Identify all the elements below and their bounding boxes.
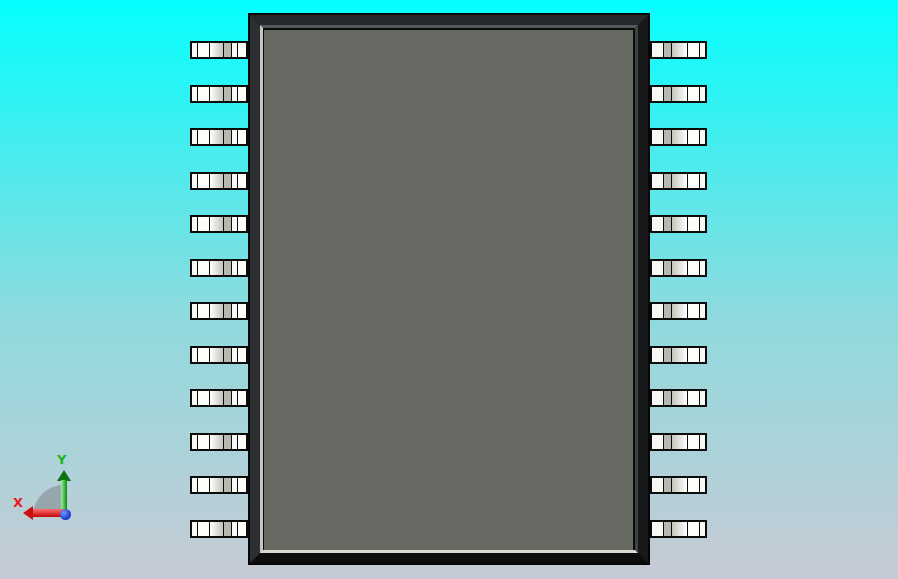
pin-segment [209,304,223,318]
pin-segment [197,87,209,101]
pin-segment [209,435,223,449]
pin-segment [209,174,223,188]
pin-segment [237,130,246,144]
ic-pin-right-11[interactable] [650,476,707,494]
pin-segment [223,435,231,449]
ic-pin-right-5[interactable] [650,215,707,233]
pin-segment [699,43,705,57]
pin-segment [652,304,663,318]
pin-segment [663,522,671,536]
pin-segment [687,130,699,144]
pin-segment [223,348,231,362]
pin-segment [197,130,209,144]
pin-segment [671,87,687,101]
pin-segment [671,174,687,188]
pin-segment [223,87,231,101]
pin-segment [699,435,705,449]
pin-segment [197,43,209,57]
pin-segment [663,304,671,318]
ic-pin-left-5[interactable] [190,215,248,233]
pin-segment [237,348,246,362]
pin-segment [209,348,223,362]
pin-segment [671,348,687,362]
pin-segment [652,43,663,57]
ic-pin-left-10[interactable] [190,433,248,451]
pin-segment [237,261,246,275]
pin-segment [687,174,699,188]
ic-pin-right-3[interactable] [650,128,707,146]
pin-segment [197,435,209,449]
ic-pin-left-2[interactable] [190,85,248,103]
pin-segment [223,478,231,492]
pin-segment [699,522,705,536]
pin-segment [209,261,223,275]
pin-segment [671,304,687,318]
pin-segment [699,478,705,492]
pin-segment [652,522,663,536]
pin-segment [663,435,671,449]
ic-pin-left-3[interactable] [190,128,248,146]
pin-segment [237,174,246,188]
pin-segment [237,304,246,318]
pin-segment [687,435,699,449]
ic-body-top-face [263,28,635,550]
pin-segment [663,174,671,188]
pin-segment [223,391,231,405]
pin-segment [223,130,231,144]
ic-pin-left-1[interactable] [190,41,248,59]
pin-segment [687,348,699,362]
pin-segment [652,348,663,362]
pin-segment [197,217,209,231]
pin-segment [223,43,231,57]
pin-segment [237,87,246,101]
pin-segment [209,391,223,405]
pin-segment [652,435,663,449]
ic-pin-left-7[interactable] [190,302,248,320]
pin-segment [687,261,699,275]
pin-segment [699,391,705,405]
orientation-gizmo: Y X [10,450,80,530]
pin-segment [671,130,687,144]
pin-segment [687,217,699,231]
ic-pin-right-8[interactable] [650,346,707,364]
pin-segment [197,174,209,188]
ic-pin-left-9[interactable] [190,389,248,407]
pin-segment [687,478,699,492]
pin-segment [209,217,223,231]
pin-segment [652,174,663,188]
ic-pin-right-1[interactable] [650,41,707,59]
x-axis-arrow-icon [23,506,33,520]
pin-segment [237,43,246,57]
pin-segment [197,522,209,536]
ic-pin-right-9[interactable] [650,389,707,407]
viewport-3d[interactable]: Y X [0,0,898,579]
pin-segment [237,391,246,405]
pin-segment [223,261,231,275]
y-axis-label: Y [57,453,66,466]
pin-segment [671,522,687,536]
pin-segment [663,217,671,231]
pin-segment [209,522,223,536]
pin-segment [237,522,246,536]
pin-segment [223,217,231,231]
pin-segment [663,130,671,144]
ic-pin-right-12[interactable] [650,520,707,538]
pin-segment [671,478,687,492]
x-axis-label: X [13,496,23,509]
pin-segment [671,217,687,231]
pin-segment [209,87,223,101]
ic-pin-left-6[interactable] [190,259,248,277]
pin-segment [687,87,699,101]
ic-pin-right-6[interactable] [650,259,707,277]
pin-segment [687,522,699,536]
pin-segment [699,348,705,362]
ic-package-body[interactable] [248,13,650,565]
pin-segment [671,435,687,449]
pin-segment [652,130,663,144]
pin-segment [687,43,699,57]
pin-segment [671,43,687,57]
pin-segment [663,478,671,492]
pin-segment [699,304,705,318]
pin-segment [652,261,663,275]
pin-segment [663,391,671,405]
pin-segment [699,217,705,231]
ic-pin-left-11[interactable] [190,476,248,494]
pin-segment [223,522,231,536]
pin-segment [663,87,671,101]
pin-segment [663,348,671,362]
ic-pin-right-7[interactable] [650,302,707,320]
pin-segment [663,261,671,275]
pin-segment [223,304,231,318]
pin-segment [652,391,663,405]
pin-segment [663,43,671,57]
ic-body-bevel-frame [250,15,648,563]
pin-segment [699,261,705,275]
pin-segment [687,391,699,405]
pin-segment [699,87,705,101]
pin-segment [652,217,663,231]
pin-segment [699,130,705,144]
pin-segment [652,87,663,101]
ic-pin-left-8[interactable] [190,346,248,364]
pin-segment [223,174,231,188]
pin-segment [699,174,705,188]
pin-segment [652,478,663,492]
pin-segment [209,130,223,144]
pin-segment [197,348,209,362]
pin-segment [237,435,246,449]
pin-segment [197,391,209,405]
ic-body-inner-trim [260,25,638,553]
pin-segment [687,304,699,318]
pin-segment [197,478,209,492]
ic-pin-right-10[interactable] [650,433,707,451]
pin-segment [197,261,209,275]
pin-segment [671,261,687,275]
ic-pin-right-4[interactable] [650,172,707,190]
ic-pin-left-4[interactable] [190,172,248,190]
pin-segment [209,43,223,57]
pin-segment [237,217,246,231]
ic-pin-right-2[interactable] [650,85,707,103]
pin-segment [237,478,246,492]
pin-segment [671,391,687,405]
origin-sphere-icon [60,509,71,520]
pin-segment [197,304,209,318]
ic-pin-left-12[interactable] [190,520,248,538]
pin-segment [209,478,223,492]
